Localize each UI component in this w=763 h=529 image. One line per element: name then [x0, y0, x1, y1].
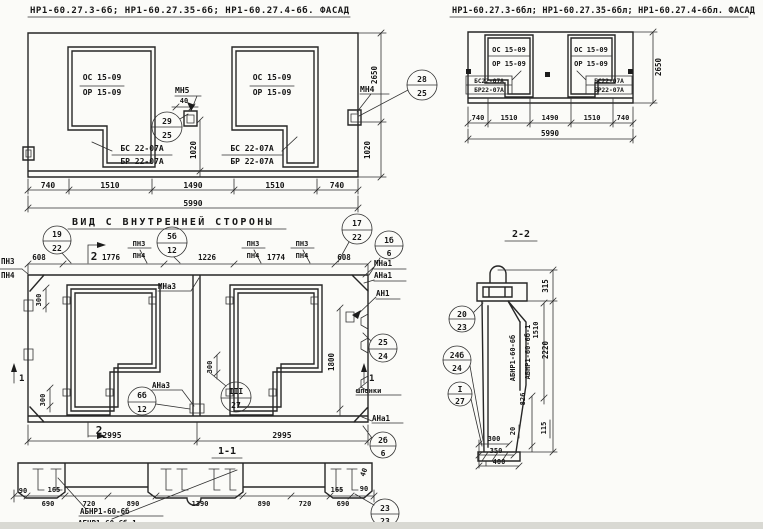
panel-mark-pn4: ПН4 [296, 252, 309, 260]
callout-6b-top: 6б [137, 390, 147, 400]
section-1-1-drawing: 1-1 90 165 690 720 890 1390 890 720 165 … [11, 446, 399, 528]
dim-690-right: 690 [337, 500, 350, 508]
callout-25-top: 25 [378, 338, 388, 347]
callout-20-bottom: 23 [457, 323, 467, 332]
callout-17-top: 17 [352, 219, 362, 228]
dim-1020-right: 1020 [363, 140, 372, 159]
callout-28-top: 28 [417, 75, 427, 84]
panel-mark-pn4: ПН4 [1, 271, 15, 280]
panel-mark-pn4: ПН4 [247, 252, 260, 260]
callout-25-bottom: 24 [378, 352, 388, 361]
section-2-2-profile [477, 266, 527, 461]
section-cut-2-top: 2 [91, 250, 98, 263]
panel-mark-pn4: ПН4 [133, 252, 146, 260]
dim-2650-vertical: 2650 [370, 65, 379, 84]
sill1-mark-top: БС22-07А [474, 78, 504, 85]
sill2-mark-top: БС22-07А [594, 78, 624, 85]
panel-mark-pn3: ПН3 [133, 240, 146, 248]
callout-29-bottom: 25 [162, 131, 172, 140]
dim-315-vertical: 315 [541, 279, 550, 293]
dim-1490: 1490 [183, 181, 202, 190]
callout-24b-top: 24б [450, 350, 465, 360]
frame-label-1: АБНР1-60-6б [80, 507, 130, 516]
blueprint-sheet: НР1-60.27.3-6б; НР1-60.27.35-6б; НР1-60.… [0, 0, 763, 529]
sill2-mark-bottom: БР22-07А [594, 87, 624, 94]
callout-24b-bottom: 24 [452, 364, 462, 373]
dim-608-left: 608 [32, 253, 46, 262]
dim-40: 40 [180, 97, 188, 105]
callout-5b-bottom: 12 [167, 246, 177, 255]
callout-20-top: 20 [457, 310, 467, 319]
window2-mark-top: ОС 15-09 [253, 73, 292, 82]
callout-19-bottom: 22 [52, 244, 62, 253]
inner-view-title: ВИД С ВНУТРЕННЕЙ СТОРОНЫ [72, 215, 274, 228]
dim-1776: 1776 [102, 253, 121, 262]
dim-826-vertical: 826 [519, 393, 527, 406]
panel-mark-pn3: ПН3 [1, 257, 15, 266]
dim-1020-mid: 1020 [189, 140, 198, 159]
section-cut-2-bottom: 2 [96, 424, 103, 437]
dim-300-b: 300 [39, 394, 47, 407]
window1-mark-top: ОС 15-09 [492, 46, 526, 54]
callout-III-top: III [229, 387, 244, 396]
dim-1490: 1490 [542, 114, 559, 122]
section-1-1-dimension-lines [11, 470, 399, 528]
shponki-label: шпонки [356, 387, 381, 395]
dim-40-diagonal: 40 [359, 467, 369, 478]
inner-view-drawing: ВИД С ВНУТРЕННЕЙ СТОРОНЫ ПН3 ПН4 608 19 … [0, 214, 406, 458]
callout-2b-top: 2б [378, 435, 388, 445]
section-cut-1-left: 1 [19, 374, 24, 384]
dim-300-a: 300 [35, 294, 43, 307]
section-1-1-title: 1-1 [218, 446, 236, 457]
callout-23-top: 23 [380, 504, 390, 513]
section-1-1-profile [18, 463, 372, 505]
dim-165-left: 165 [48, 486, 61, 494]
dim-2650-vertical: 2650 [654, 57, 663, 76]
embed-mark-mna3: МНа3 [158, 282, 177, 291]
dim-total-5990: 5990 [541, 129, 560, 138]
window2-mark-top: ОС 15-09 [574, 46, 608, 54]
dim-1390: 1390 [192, 500, 209, 508]
dim-2995-b: 2995 [272, 431, 291, 440]
window2-mark-bottom: ОР 15-09 [253, 88, 292, 97]
dim-300: 300 [488, 435, 501, 443]
callout-6b-bottom: 12 [137, 405, 147, 414]
dim-740-a: 740 [41, 181, 56, 190]
section-2-2-drawing: 2-2 АБНР1-60-6б АБНР1-60-6б-1 1510 826 3… [443, 229, 557, 469]
embed-mark-ana1: АНа1 [374, 271, 393, 280]
dim-1800: 1800 [327, 352, 336, 371]
drawing-canvas: НР1-60.27.3-6б; НР1-60.27.35-6б; НР1-60.… [0, 0, 763, 529]
dim-890-right: 890 [258, 500, 271, 508]
section-2-2-title: 2-2 [512, 229, 530, 240]
dim-90-left: 90 [19, 487, 27, 495]
callout-1b-bottom: 6 [387, 249, 392, 258]
callout-19-top: 19 [52, 230, 62, 239]
dim-165-right: 165 [331, 486, 344, 494]
sill1-mark-bottom: БР22-07А [474, 87, 504, 94]
embed-mark-an1: АН1 [376, 289, 390, 298]
facade-right-drawing: НР1-60.27.3-6бл; НР1-60.27.35-6бл; НР1-6… [450, 5, 755, 143]
window1-mark-bottom: ОР 15-09 [492, 60, 526, 68]
callout-17-bottom: 22 [352, 233, 362, 242]
dim-720-right: 720 [299, 500, 312, 508]
dim-20-vertical: 20 [509, 427, 517, 435]
callout-III-bottom: 27 [231, 401, 241, 410]
frame-label-1-vertical: АБНР1-60-6б [509, 335, 517, 381]
callout-I-bottom: 27 [455, 397, 465, 406]
facade-right-title: НР1-60.27.3-6бл; НР1-60.27.35-6бл; НР1-6… [452, 5, 755, 16]
dim-1510-vertical: 1510 [532, 322, 540, 339]
sill1-mark-bottom: БР 22-07А [120, 157, 164, 166]
facade-left-drawing: НР1-60.27.3-6б; НР1-60.27.35-6б; НР1-60.… [23, 5, 437, 212]
window2-mark-bottom: ОР 15-09 [574, 60, 608, 68]
dim-1510-a: 1510 [100, 181, 119, 190]
window1-mark-bottom: ОР 15-09 [83, 88, 122, 97]
dim-740-a: 740 [472, 114, 485, 122]
dim-115-vertical: 115 [540, 422, 548, 435]
dim-690-left: 690 [42, 500, 55, 508]
dim-total-5990: 5990 [183, 199, 202, 208]
sill2-mark-bottom: БР 22-07А [230, 157, 274, 166]
dim-1774: 1774 [267, 253, 286, 262]
callout-29-top: 29 [162, 117, 172, 126]
dim-350: 350 [490, 447, 503, 455]
dim-90-right: 90 [360, 485, 368, 493]
callout-I-top: I [458, 385, 463, 394]
dim-2220-vertical: 2220 [541, 340, 550, 359]
dim-1226: 1226 [198, 253, 217, 262]
dim-608-right: 608 [337, 253, 351, 262]
scan-edge-bottom [0, 522, 763, 529]
window1-mark-top: ОС 15-09 [83, 73, 122, 82]
dim-740-b: 740 [330, 181, 345, 190]
callout-28-bottom: 25 [417, 89, 427, 98]
dim-400: 400 [493, 458, 506, 466]
section-cut-1-right: 1 [369, 374, 374, 384]
embed-mark-ana3: АНа3 [152, 381, 171, 390]
panel-mark-pn3: ПН3 [296, 240, 309, 248]
embed-mark-mna1: МНа1 [374, 259, 393, 268]
facade-left-title: НР1-60.27.3-6б; НР1-60.27.35-6б; НР1-60.… [30, 5, 350, 16]
embed-mark-mn5: МН5 [175, 86, 190, 95]
facade-left-detail-lines [25, 17, 408, 212]
callout-2b-bottom: 6 [381, 449, 386, 458]
embed-mark-ana1-bottom: АНа1 [372, 414, 391, 423]
dim-300-c: 300 [206, 361, 214, 374]
callout-5b-top: 5б [167, 231, 177, 241]
dim-2995-a: 2995 [102, 431, 121, 440]
dim-1510-a: 1510 [501, 114, 518, 122]
panel-mark-pn3: ПН3 [247, 240, 260, 248]
sill1-mark-top: БС 22-07А [120, 144, 164, 153]
callout-1b-top: 1б [384, 235, 394, 245]
dim-740-b: 740 [617, 114, 630, 122]
frame-label-2-vertical: АБНР1-60-6б-1 [524, 325, 532, 380]
dim-1510-b: 1510 [584, 114, 601, 122]
sill2-mark-top: БС 22-07А [230, 144, 274, 153]
dim-1510-b: 1510 [265, 181, 284, 190]
embed-mark-mn4: МН4 [360, 85, 375, 94]
